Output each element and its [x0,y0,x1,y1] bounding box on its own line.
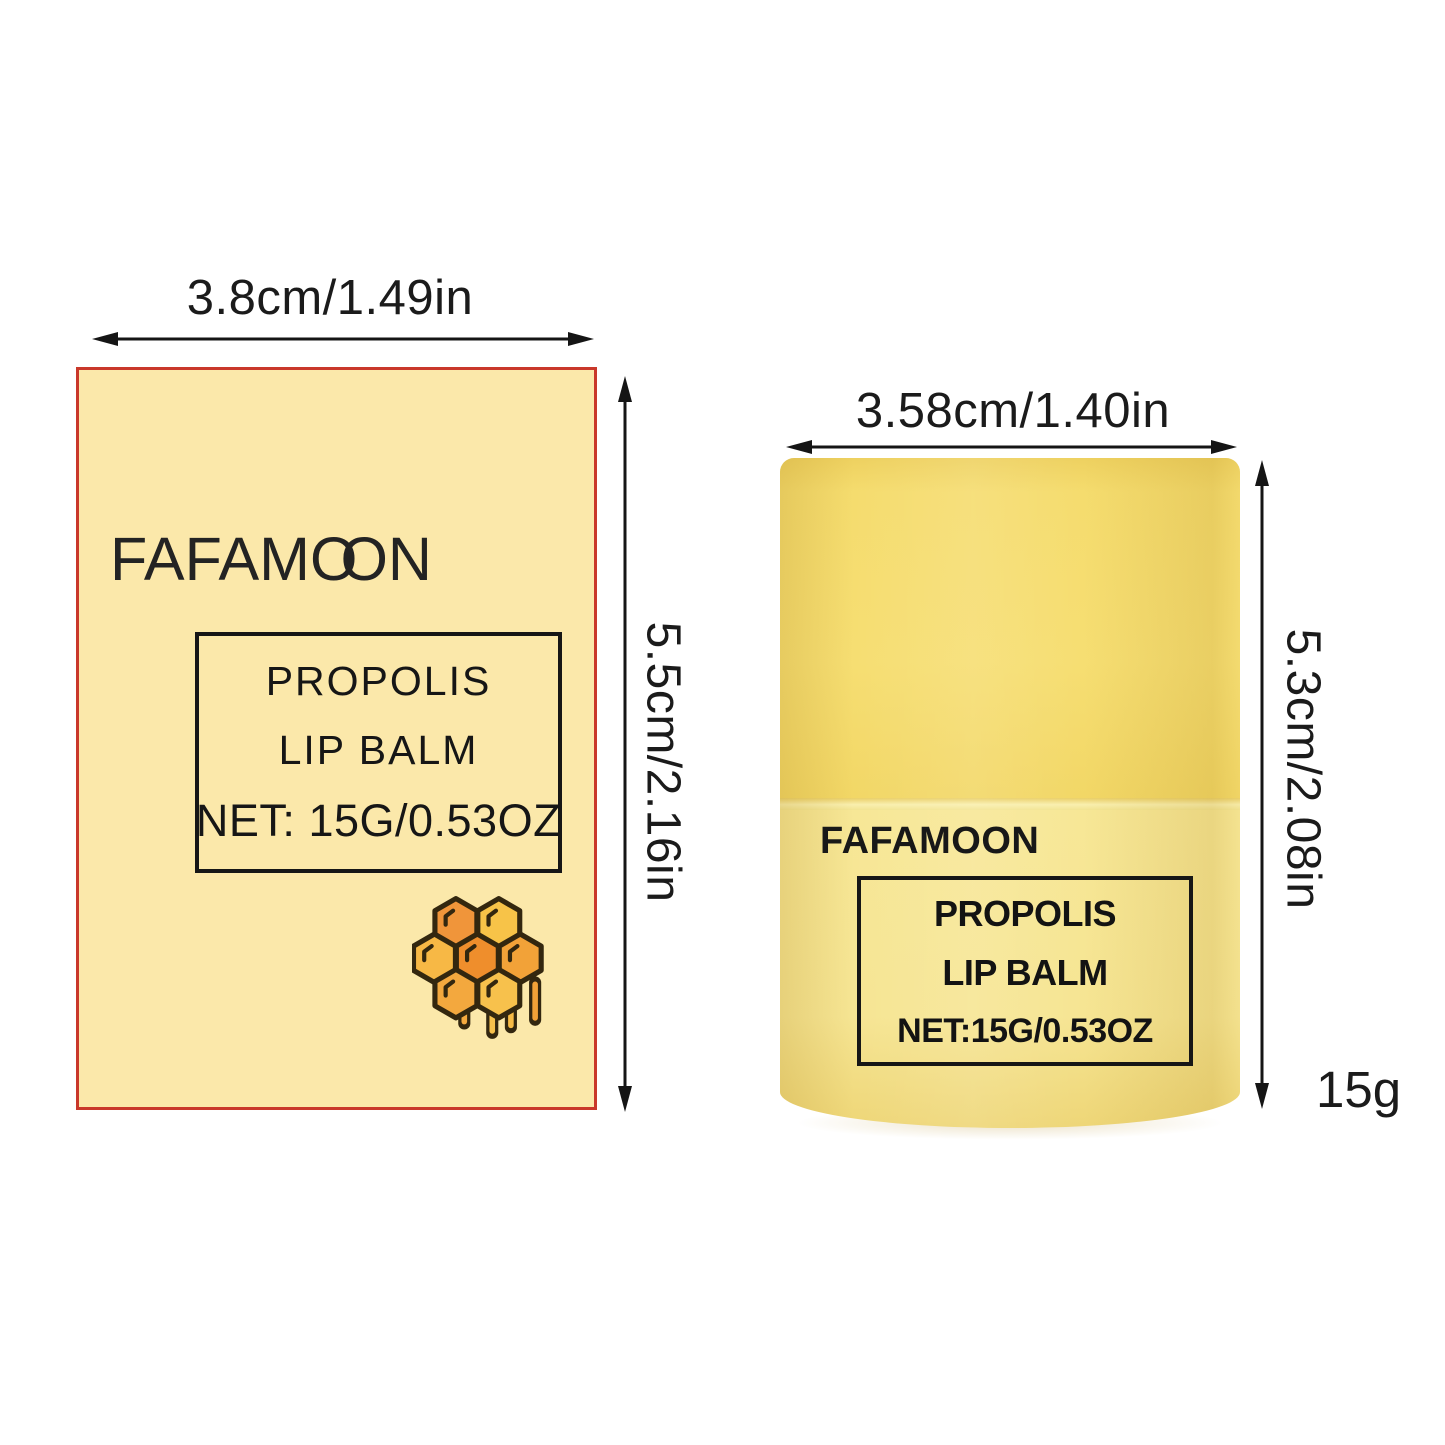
package-label-line-net-weight: NET: 15G/0.53OZ [196,795,561,847]
tub-label-line-propolis: PROPOLIS [934,894,1116,934]
package-width-arrow [91,326,595,352]
lip-balm-tub: FAFAMOON PROPOLIS LIP BALM NET:15G/0.53O… [780,458,1240,1128]
brand-text-part: N [388,525,432,593]
tub-height-arrow [1249,459,1275,1110]
package-height-arrow [612,375,638,1113]
tub-label-line-lip-balm: LIP BALM [942,953,1107,993]
tub-width-arrow [785,434,1238,460]
package-front: FAFAMOON PROPOLIS LIP BALM NET: 15G/0.53… [76,367,597,1110]
tub-brand-logo: FAFAMOON [820,820,1039,863]
tub-label-line-net-weight: NET:15G/0.53OZ [897,1013,1153,1050]
package-label-box: PROPOLIS LIP BALM NET: 15G/0.53OZ [195,632,562,873]
tub-height-label: 5.3cm/2.08in [1276,629,1331,910]
tub-cap [780,458,1240,798]
tub-label-box: PROPOLIS LIP BALM NET:15G/0.53OZ [857,876,1193,1066]
package-label-line-lip-balm: LIP BALM [279,727,479,774]
tub-cap-seam [780,798,1240,810]
brand-text-part: FAFAM [110,525,310,593]
package-width-label: 3.8cm/1.49in [187,270,474,326]
brand-ring-o2: O [340,525,387,593]
package-brand-logo: FAFAMOON [110,524,432,594]
lip-balm-dimension-diagram: 3.8cm/1.49in FAFAMOON PROPOLIS LIP BALM … [0,0,1445,1445]
package-label-line-propolis: PROPOLIS [266,658,492,705]
tub-width-label: 3.58cm/1.40in [856,383,1170,439]
net-weight-label: 15g [1316,1060,1401,1119]
honeycomb-icon [412,893,552,1044]
package-height-label: 5.5cm/2.16in [636,622,691,903]
